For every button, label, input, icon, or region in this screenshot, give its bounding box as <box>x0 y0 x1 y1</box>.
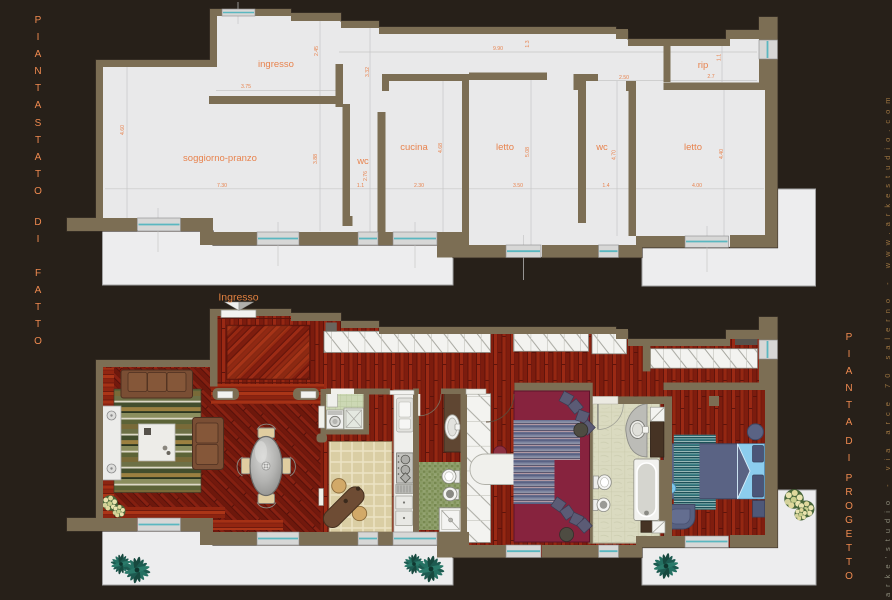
svg-text:S: S <box>35 118 42 129</box>
svg-text:A: A <box>35 49 42 60</box>
svg-text:4.40: 4.40 <box>719 149 725 159</box>
svg-text:O: O <box>845 571 853 582</box>
svg-text:A: A <box>846 366 853 377</box>
svg-text:A: A <box>35 100 42 111</box>
svg-text:N: N <box>845 383 852 394</box>
svg-text:I: I <box>848 349 851 360</box>
svg-text:1.4: 1.4 <box>602 183 609 189</box>
svg-text:P: P <box>846 473 853 484</box>
svg-text:letto: letto <box>496 142 514 153</box>
svg-text:N: N <box>34 66 41 77</box>
svg-text:T: T <box>35 83 41 94</box>
svg-text:2.50: 2.50 <box>619 75 629 81</box>
svg-text:4.70: 4.70 <box>612 150 618 160</box>
svg-text:2.7: 2.7 <box>707 74 714 80</box>
svg-text:1.1: 1.1 <box>357 183 364 189</box>
svg-text:T: T <box>846 543 852 554</box>
svg-text:2.30: 2.30 <box>414 183 424 189</box>
svg-text:I: I <box>848 453 851 464</box>
svg-text:I: I <box>37 234 40 245</box>
svg-text:T: T <box>35 169 41 180</box>
svg-text:O: O <box>34 186 42 197</box>
svg-text:wc: wc <box>595 142 608 153</box>
svg-text:I: I <box>37 32 40 43</box>
svg-text:E: E <box>846 529 853 540</box>
svg-text:T: T <box>846 400 852 411</box>
svg-text:D: D <box>845 436 852 447</box>
svg-text:1.3: 1.3 <box>525 40 531 47</box>
svg-text:P: P <box>846 332 853 343</box>
svg-text:R: R <box>845 487 852 498</box>
svg-text:T: T <box>35 302 41 313</box>
svg-text:3.88: 3.88 <box>313 154 319 164</box>
svg-text:5.08: 5.08 <box>525 147 531 157</box>
svg-text:O: O <box>845 501 853 512</box>
svg-text:T: T <box>35 319 41 330</box>
svg-text:3.75: 3.75 <box>241 84 251 90</box>
svg-text:A: A <box>846 417 853 428</box>
svg-text:2.76: 2.76 <box>363 171 369 181</box>
svg-text:wc: wc <box>356 156 369 167</box>
svg-text:T: T <box>846 557 852 568</box>
svg-text:4.68: 4.68 <box>438 143 444 153</box>
svg-text:G: G <box>845 515 853 526</box>
svg-text:arke'studio - via arce 70 sale: arke'studio - via arce 70 salerno - www.… <box>883 91 892 597</box>
svg-text:A: A <box>35 285 42 296</box>
svg-text:1.1: 1.1 <box>717 54 723 61</box>
svg-text:rip: rip <box>698 60 709 71</box>
svg-text:3.50: 3.50 <box>513 183 523 189</box>
svg-text:T: T <box>35 135 41 146</box>
svg-text:D: D <box>34 217 41 228</box>
svg-text:soggiorno-pranzo: soggiorno-pranzo <box>183 153 257 164</box>
svg-text:4.00: 4.00 <box>692 183 702 189</box>
svg-text:9.90: 9.90 <box>493 46 503 52</box>
svg-text:A: A <box>35 152 42 163</box>
svg-text:3.32: 3.32 <box>365 67 371 77</box>
svg-text:P: P <box>35 15 42 26</box>
svg-text:4.60: 4.60 <box>120 125 126 135</box>
svg-text:Ingresso: Ingresso <box>218 292 258 304</box>
svg-text:2.45: 2.45 <box>314 46 320 56</box>
svg-text:O: O <box>34 336 42 347</box>
svg-text:cucina: cucina <box>400 142 428 153</box>
svg-text:7.30: 7.30 <box>217 183 227 189</box>
svg-text:letto: letto <box>684 142 702 153</box>
svg-text:F: F <box>35 268 41 279</box>
svg-text:ingresso: ingresso <box>258 59 294 70</box>
